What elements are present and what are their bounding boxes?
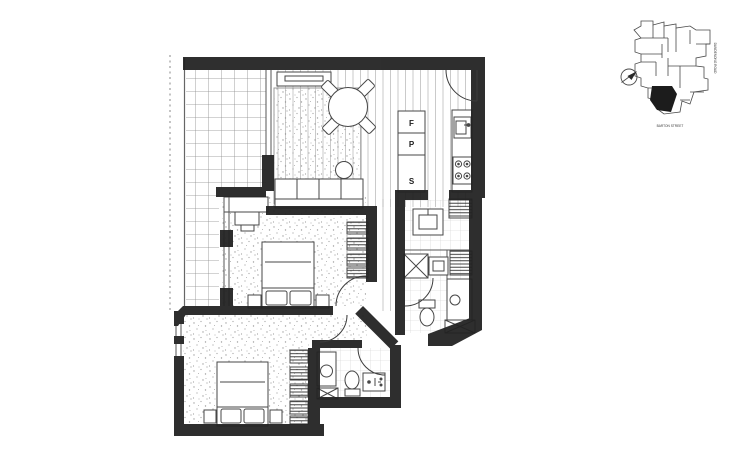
floor-plan-page: F P S: [0, 0, 750, 459]
bedroom1-wardrobe-shelves: [347, 222, 368, 278]
bedside-table: [270, 410, 282, 423]
balcony-sliding-door: [266, 70, 271, 156]
side-table: [336, 162, 353, 179]
toilet-icon: [345, 371, 360, 396]
toilet-icon: [419, 300, 435, 326]
fridge-label: F: [409, 119, 414, 128]
floor-plan-drawing: F P S: [0, 0, 750, 459]
road-label: DANDENONG ROAD: [713, 43, 717, 75]
bedroom1-bed: [262, 242, 314, 308]
bedroom2-wardrobe-shelves: [290, 350, 308, 424]
bedroom2-bed: [217, 362, 268, 426]
washing-machine-icon: [404, 254, 428, 278]
sofa: [275, 179, 363, 208]
basin-icon: [429, 257, 448, 275]
linen-shelves: [449, 199, 472, 218]
bedside-table: [204, 410, 216, 423]
corridor-timber-floor: [377, 199, 396, 311]
north-compass-icon: [621, 69, 637, 85]
shower-icon: [447, 279, 472, 320]
vanity-sink-icon: [363, 373, 385, 391]
pantry-label: P: [409, 140, 415, 149]
living-dining-room: [274, 72, 376, 208]
highlighted-unit: [650, 86, 677, 112]
street-label: BARTON STREET: [657, 124, 684, 128]
kitchen-sink-icon: [454, 117, 471, 138]
tv-unit: [277, 72, 331, 86]
hallway-carpet: [183, 315, 367, 341]
balcony-tile-floor: [186, 70, 266, 188]
storage-label: S: [409, 177, 415, 186]
linen-shelves: [450, 251, 472, 275]
key-plan: BARTON STREET DANDENONG ROAD: [621, 21, 717, 128]
balcony-tile-floor-south: [186, 188, 219, 306]
laundry-trough-icon: [413, 209, 443, 235]
dining-table: [329, 88, 368, 127]
cooktop-icon: [453, 157, 472, 184]
